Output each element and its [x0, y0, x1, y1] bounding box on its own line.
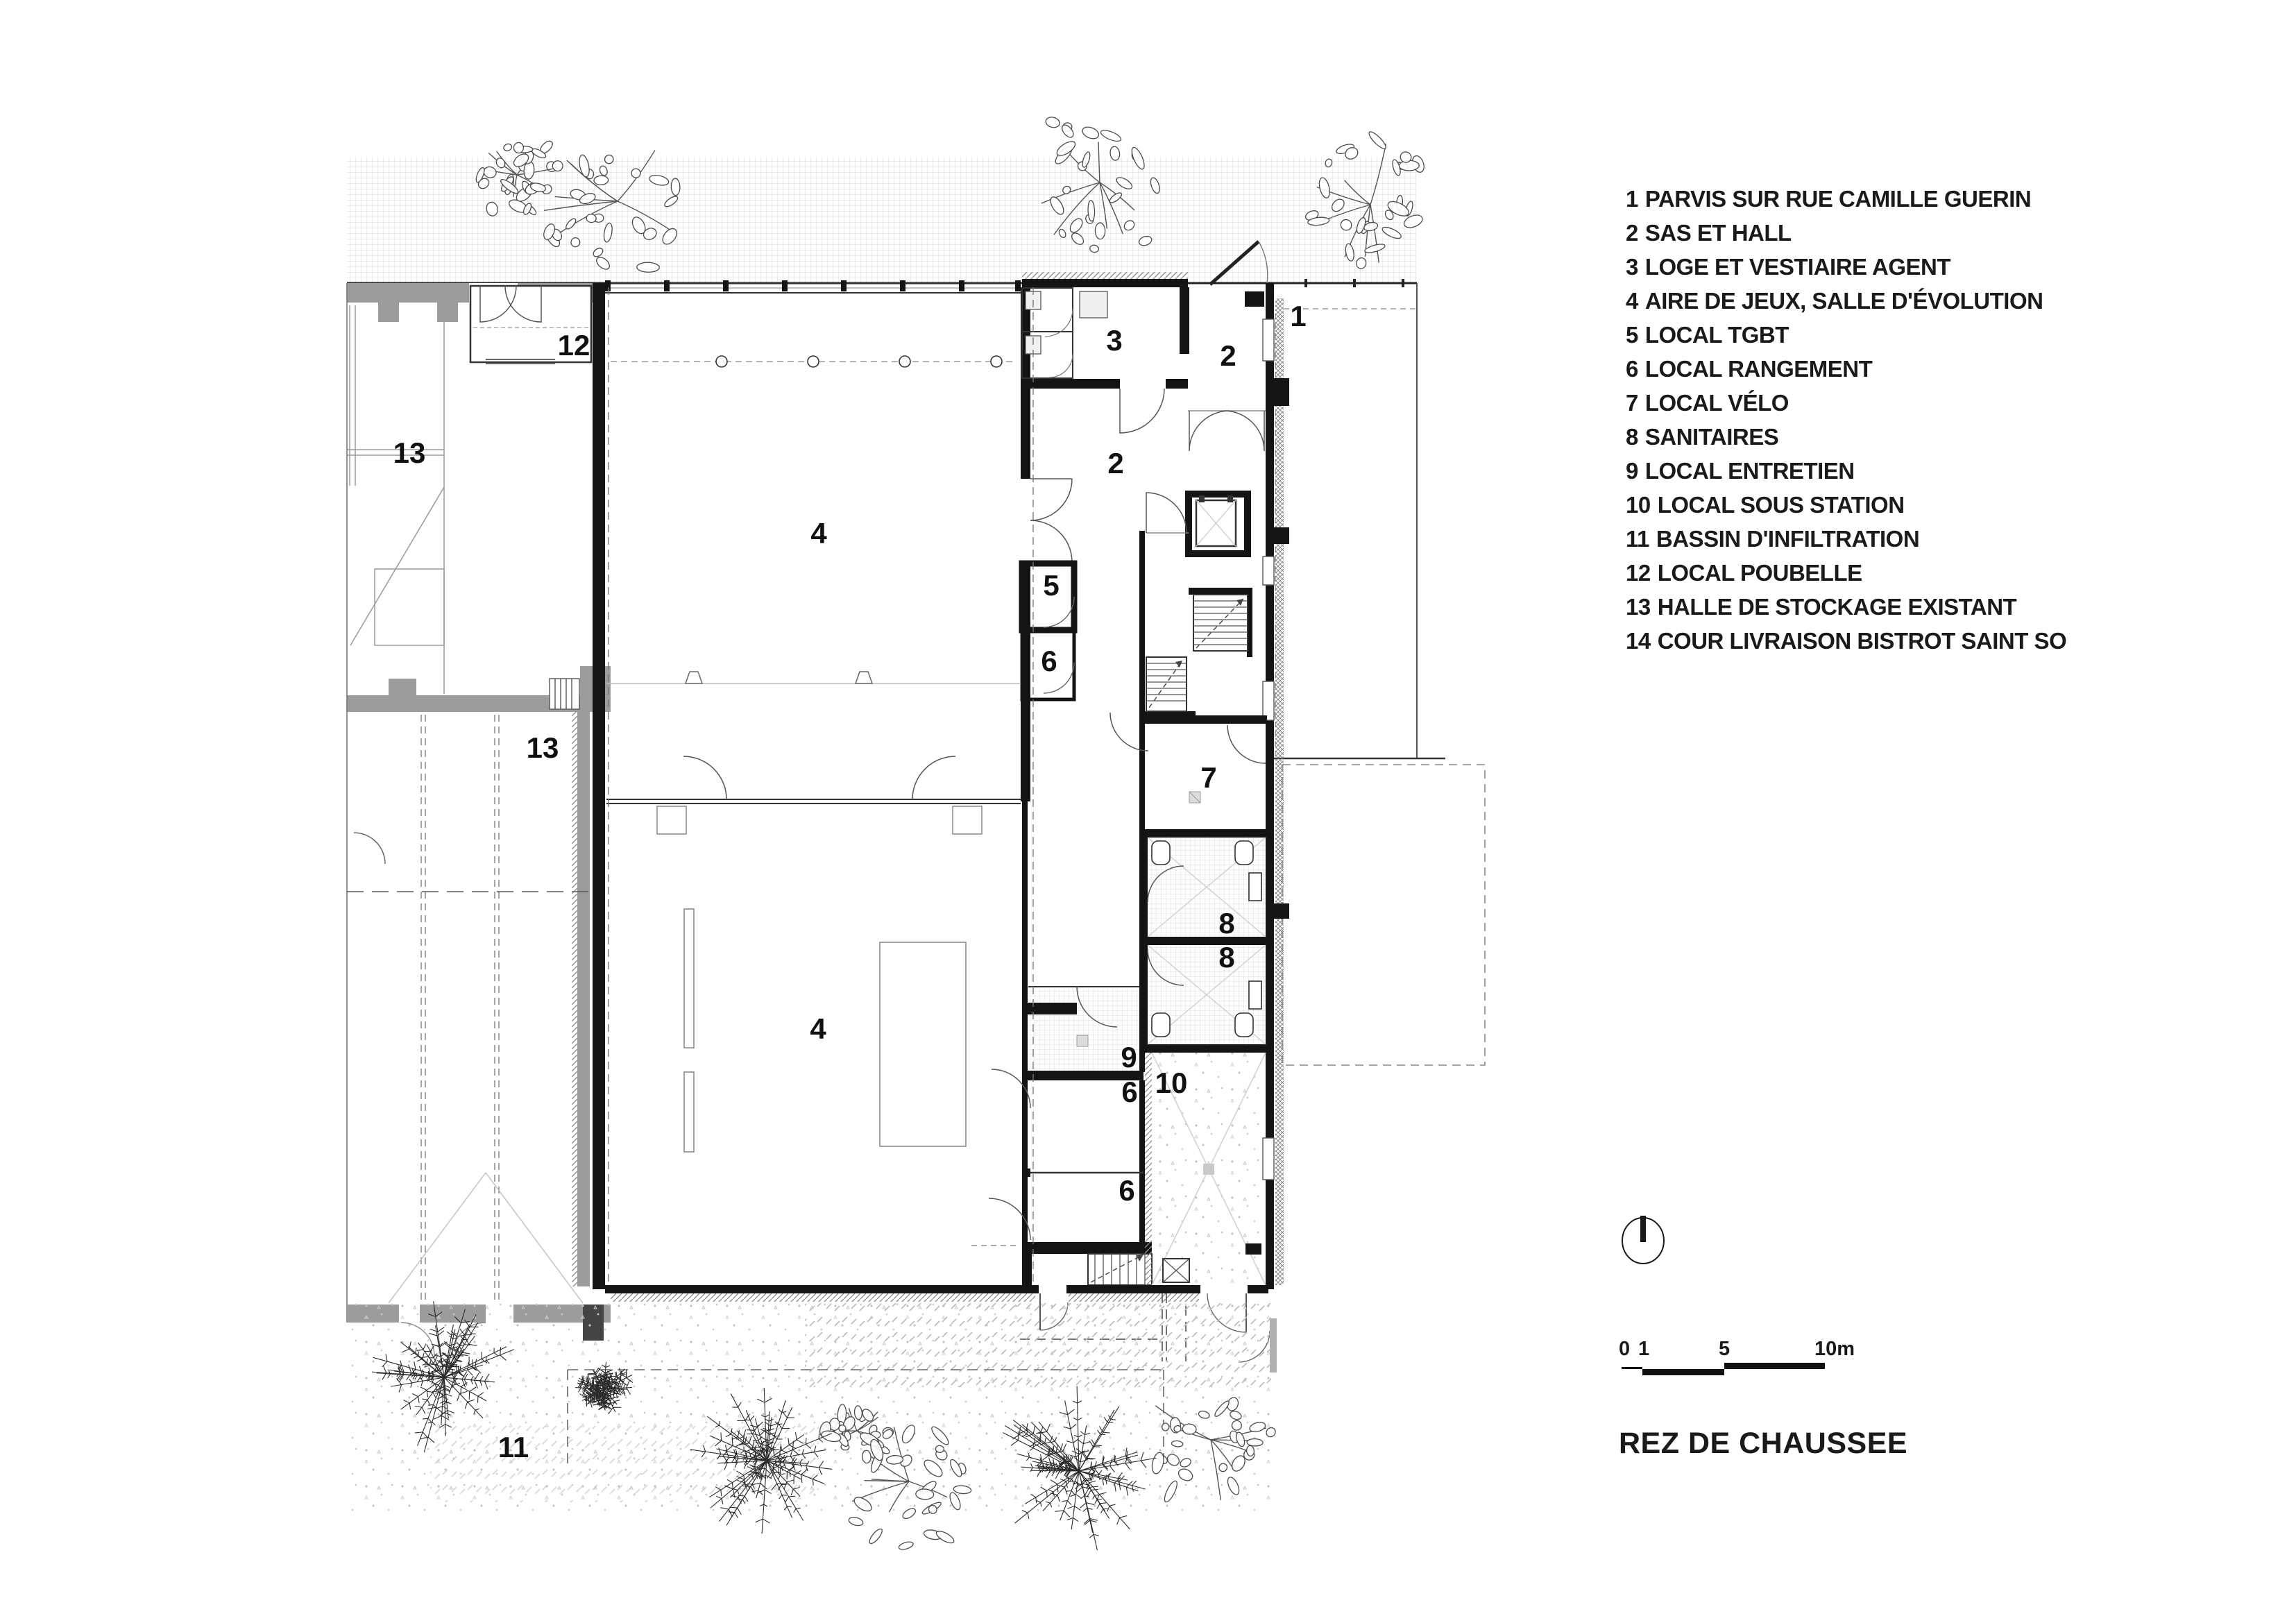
legend-label: LOCAL POUBELLE [1658, 560, 1862, 586]
hall-double-door [1030, 479, 1072, 562]
nursery-building [593, 241, 1289, 1373]
room-label-10: 10 [1155, 1067, 1188, 1099]
existing-stair [550, 679, 579, 709]
room-7-velo [1110, 713, 1267, 838]
room-label-5: 5 [1043, 569, 1059, 602]
stair-lobby-door [1146, 493, 1189, 533]
drawing-title: REZ DE CHAUSSEE [1619, 1427, 1907, 1461]
room-label-6-mid: 6 [1121, 1076, 1137, 1108]
room-label-2-hall: 2 [1107, 447, 1123, 479]
legend-item-8: 8SANITAIRES [1626, 420, 2222, 454]
elevator [1189, 494, 1248, 554]
scale-label-1: 1 [1638, 1338, 1649, 1361]
south-stair [1025, 1247, 1152, 1285]
legend-label: LOCAL RANGEMENT [1645, 356, 1872, 382]
legend-num: 10 [1626, 488, 1651, 522]
legend-label: LOCAL VÉLO [1645, 390, 1789, 416]
legend-item-10: 10LOCAL SOUS STATION [1626, 488, 2222, 522]
room-label-4-lower: 4 [810, 1012, 826, 1045]
structural-dashed [609, 287, 1033, 1284]
room-label-9: 9 [1121, 1041, 1137, 1073]
scale-seg-1-5 [1642, 1369, 1724, 1375]
room-label-4-upper: 4 [810, 517, 827, 550]
room-label-11: 11 [498, 1431, 529, 1463]
legend-label: COUR LIVRAISON BISTROT SAINT SO [1658, 628, 2067, 654]
scale-bar: 0 1 5 10m [1622, 1338, 1830, 1379]
legend-item-13: 13HALLE DE STOCKAGE EXISTANT [1626, 590, 2222, 624]
north-arrow-icon [1617, 1214, 1672, 1273]
legend-label: LOCAL TGBT [1645, 322, 1789, 348]
legend-item-11: 11BASSIN D'INFILTRATION [1626, 522, 2222, 556]
legend-num: 9 [1626, 454, 1638, 488]
room-label-8-upper: 8 [1218, 907, 1234, 940]
column-line [611, 356, 1013, 367]
room-label-6-south: 6 [1119, 1174, 1134, 1207]
legend-label: LOGE ET VESTIAIRE AGENT [1645, 254, 1950, 280]
legend-num: 2 [1626, 216, 1638, 250]
existing-hall-lower [347, 283, 611, 1356]
legend-num: 3 [1626, 250, 1638, 284]
legend-label: SANITAIRES [1645, 424, 1778, 450]
legend-num: 8 [1626, 420, 1638, 454]
room-label-13-lower: 13 [527, 731, 559, 764]
legend-item-9: 9LOCAL ENTRETIEN [1626, 454, 2222, 488]
legend-num: 6 [1626, 352, 1638, 386]
scale-label-0: 0 [1619, 1338, 1630, 1361]
legend-item-7: 7LOCAL VÉLO [1626, 386, 2222, 420]
legend-num: 14 [1626, 624, 1651, 658]
legend-item-3: 3LOGE ET VESTIAIRE AGENT [1626, 250, 2222, 284]
room-label-6-north: 6 [1041, 645, 1057, 677]
legend-item-4: 4AIRE DE JEUX, SALLE D'ÉVOLUTION [1626, 284, 2222, 318]
legend-label: BASSIN D'INFILTRATION [1656, 526, 1919, 552]
room-label-13-upper: 13 [393, 436, 426, 469]
legend-num: 12 [1626, 556, 1651, 590]
legend-num: 1 [1626, 182, 1638, 216]
room-label-1: 1 [1290, 300, 1306, 332]
scale-seg-0-1 [1622, 1367, 1642, 1369]
room-4-partition [606, 672, 1021, 834]
sanitaires [1139, 838, 1266, 1053]
room-3-loge [1022, 288, 1188, 433]
legend-label: LOCAL SOUS STATION [1658, 492, 1905, 518]
room-label-7: 7 [1200, 761, 1216, 794]
legend-item-6: 6LOCAL RANGEMENT [1626, 352, 2222, 386]
main-stair [1146, 595, 1248, 711]
legend-item-1: 1PARVIS SUR RUE CAMILLE GUERIN [1626, 182, 2222, 216]
legend-item-12: 12LOCAL POUBELLE [1626, 556, 2222, 590]
legend-item-14: 14COUR LIVRAISON BISTROT SAINT SO [1626, 624, 2222, 658]
floor-plan-sheet: 1 2 3 2 4 5 6 12 13 13 7 8 8 9 10 6 6 4 … [0, 0, 2296, 1623]
room-label-3: 3 [1106, 324, 1122, 357]
room-label-8-lower: 8 [1218, 941, 1234, 974]
legend-label: HALLE DE STOCKAGE EXISTANT [1658, 594, 2016, 620]
scale-label-10: 10m [1814, 1338, 1855, 1361]
legend-num: 7 [1626, 386, 1638, 420]
legend-item-5: 5LOCAL TGBT [1626, 318, 2222, 352]
legend-item-2: 2SAS ET HALL [1626, 216, 2222, 250]
legend-num: 13 [1626, 590, 1651, 624]
room-label-12: 12 [558, 329, 590, 362]
legend-num: 11 [1626, 522, 1649, 556]
legend-num: 5 [1626, 318, 1638, 352]
legend-label: LOCAL ENTRETIEN [1645, 458, 1855, 484]
room-label-2-sas: 2 [1220, 339, 1236, 372]
site-dashed-lines [1272, 309, 1485, 1284]
legend-label: AIRE DE JEUX, SALLE D'ÉVOLUTION [1645, 288, 2043, 314]
legend-label: SAS ET HALL [1645, 220, 1792, 246]
scale-seg-5-10 [1724, 1363, 1825, 1369]
corridor-left-wall [1021, 287, 1030, 1285]
legend-label: PARVIS SUR RUE CAMILLE GUERIN [1645, 186, 2031, 212]
scale-label-5: 5 [1719, 1338, 1730, 1361]
legend: 1PARVIS SUR RUE CAMILLE GUERIN 2SAS ET H… [1626, 182, 2222, 658]
legend-num: 4 [1626, 284, 1638, 318]
